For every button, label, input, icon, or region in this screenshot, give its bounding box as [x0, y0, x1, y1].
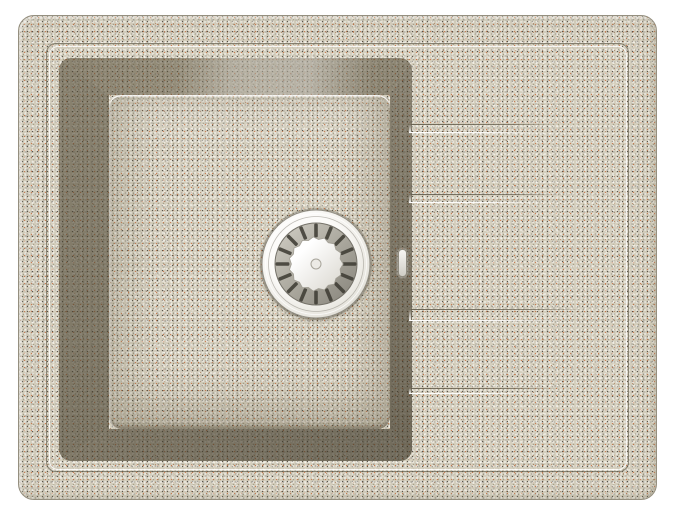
sink-body: [18, 15, 657, 500]
sink-bowl: [59, 58, 412, 461]
groove-g-dark: [409, 388, 561, 389]
groove-g-light: [409, 320, 573, 322]
groove-g-light: [409, 393, 549, 395]
groove-g-dark: [409, 124, 559, 125]
overflow-notch: [398, 249, 407, 277]
sink-photo: [0, 0, 673, 520]
groove-g-dark: [409, 194, 561, 195]
drain-strainer: [258, 206, 374, 322]
drainboard-groove-2: [409, 194, 561, 203]
groove-g-dark: [409, 309, 587, 310]
groove-g-light: [409, 132, 547, 134]
drainboard-groove-4: [409, 388, 561, 394]
drain-center-hole: [311, 259, 321, 269]
drainboard-groove-3: [409, 309, 587, 321]
drainboard-groove-1: [409, 124, 559, 133]
groove-g-light: [409, 202, 549, 204]
